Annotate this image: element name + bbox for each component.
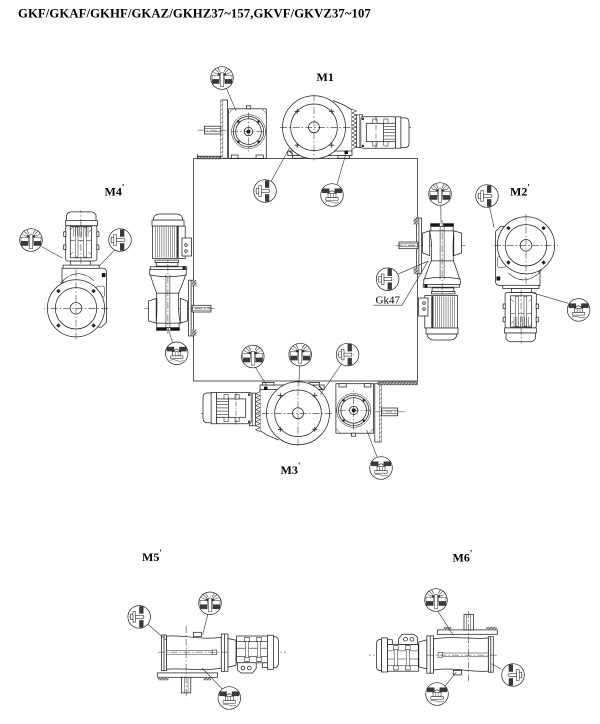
svg-text:M3': M3': [281, 461, 301, 477]
svg-text:M4': M4': [105, 183, 125, 199]
svg-text:M6': M6': [453, 549, 473, 565]
svg-text:GKF/GKAF/GKHF/GKAZ/GKHZ37~157,: GKF/GKAF/GKHF/GKAZ/GKHZ37~157,GKVF/GKVZ3…: [18, 6, 371, 20]
svg-text:M5': M5': [142, 548, 162, 564]
svg-text:Gk47: Gk47: [376, 295, 401, 307]
svg-text:M1: M1: [317, 70, 334, 84]
svg-text:M2': M2': [510, 183, 530, 199]
